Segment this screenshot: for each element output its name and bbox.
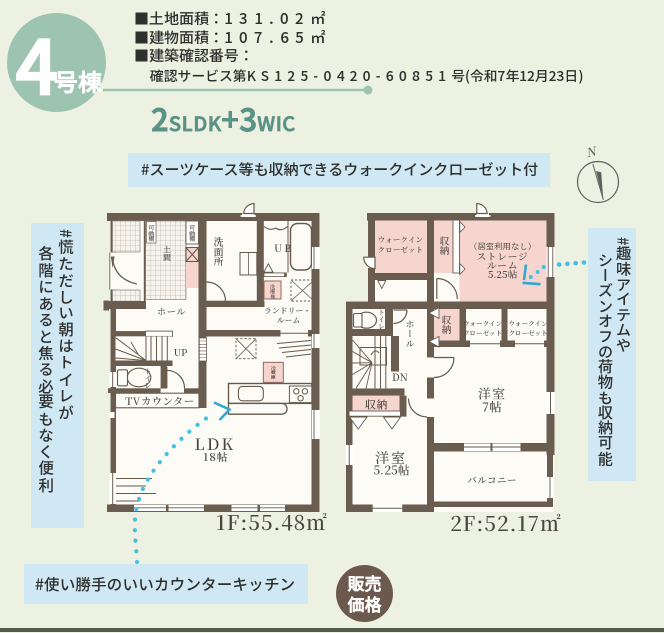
svg-text:5.25帖: 5.25帖 — [373, 462, 409, 479]
svg-text:UB: UB — [274, 240, 294, 255]
svg-text:可動棚: 可動棚 — [188, 224, 197, 243]
svg-text:クローゼット: クローゼット — [378, 245, 424, 256]
svg-text:収納: 収納 — [440, 314, 454, 334]
svg-text:2F:52.17㎡: 2F:52.17㎡ — [450, 507, 562, 537]
svg-text:ルーム: ルーム — [277, 315, 301, 326]
svg-text:TVカウンター: TVカウンター — [125, 393, 194, 408]
svg-text:UP: UP — [174, 345, 188, 359]
svg-text:1F:55.48㎡: 1F:55.48㎡ — [216, 506, 328, 536]
svg-text:洗濯機: 洗濯機 — [269, 284, 277, 299]
svg-text:ウォークイン: ウォークイン — [463, 318, 502, 328]
svg-text:土間: 土間 — [162, 245, 173, 261]
svg-text:クローゼット: クローゼット — [463, 328, 502, 338]
svg-text:ウォークイン: ウォークイン — [509, 318, 548, 328]
svg-text:収納: 収納 — [365, 397, 388, 413]
svg-text:ホール: ホール — [403, 319, 417, 348]
svg-text:クローゼット: クローゼット — [508, 328, 547, 338]
svg-text:可動棚: 可動棚 — [147, 224, 156, 243]
svg-text:バルコニー: バルコニー — [466, 473, 517, 487]
svg-text:18帖: 18帖 — [203, 449, 228, 465]
svg-text:洗面所: 洗面所 — [212, 236, 226, 266]
svg-text:DN: DN — [392, 369, 409, 384]
svg-text:トイレ: トイレ — [377, 308, 387, 330]
svg-text:5.25帖: 5.25帖 — [488, 267, 518, 281]
svg-text:ホール: ホール — [157, 304, 186, 318]
svg-text:収納: 収納 — [438, 235, 452, 255]
svg-text:冷蔵庫: 冷蔵庫 — [269, 365, 277, 380]
svg-text:トイレ: トイレ — [143, 367, 153, 389]
svg-text:7帖: 7帖 — [482, 398, 502, 416]
svg-text:N: N — [584, 142, 600, 161]
